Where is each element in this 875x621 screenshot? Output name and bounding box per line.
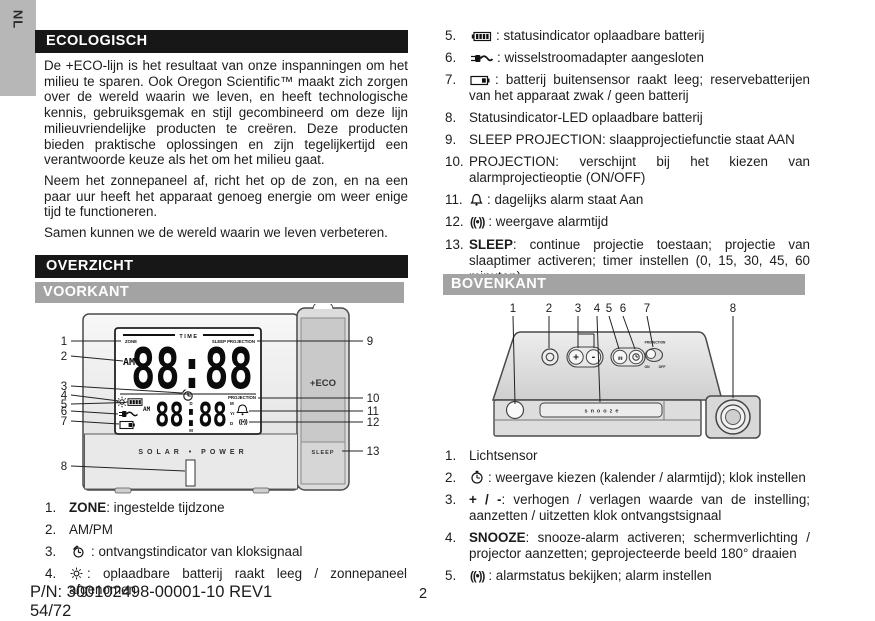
item-number: 12. [445, 214, 469, 231]
projection-switch-label: PROJECTION [645, 341, 666, 345]
item-text: SLEEP PROJECTION: slaapprojectiefunctie … [469, 132, 810, 148]
item-text: Lichtsensor [469, 448, 810, 464]
item-text: ZONE: ingestelde tijdzone [69, 500, 407, 516]
item-number: 9. [445, 132, 469, 148]
sleep-button [301, 442, 345, 484]
callout-3: 3 [575, 303, 581, 315]
paragraph: Neem het zonnepaneel af, richt het op de… [44, 173, 408, 220]
callout-2: 2 [546, 303, 552, 315]
minus-label: - [592, 351, 596, 363]
callout-6: 6 [620, 303, 626, 315]
item-text: : batterij buitensensor raakt leeg; rese… [469, 72, 810, 104]
item-desc: : statusindicator oplaadbare batterij [496, 28, 704, 43]
switch-off-label: OFF [659, 365, 666, 369]
item-text: + / -: verhogen / verlagen waarde van de… [469, 492, 810, 524]
item-number: 4. [445, 530, 469, 562]
item-number: 3. [45, 544, 69, 560]
lcd-alarm-time-icon: ((•)) [239, 419, 248, 426]
lcd-m-label: M [189, 428, 193, 433]
callout-10: 10 [367, 393, 380, 405]
sun-icon [70, 567, 83, 580]
item-lead: ZONE [69, 500, 106, 515]
item-text: PROJECTION: verschijnt bij het kiezen va… [469, 154, 810, 186]
lcd-month-label: M [230, 401, 234, 406]
lcd-d-label: D [189, 401, 192, 406]
item-number: 1. [445, 448, 469, 464]
list-item: 3. : ontvangstindicator van kloksignaal [45, 544, 407, 560]
plus-label: + [573, 353, 579, 364]
list-item: 7. : batterij buitensensor raakt leeg; r… [445, 72, 810, 104]
sleep-button-label: SLEEP [311, 450, 334, 456]
foot [253, 488, 269, 493]
solar-panel-slot [186, 460, 195, 486]
callout-9: 9 [367, 336, 373, 348]
left-column: ECOLOGISCH De +ECO-lijn is het resultaat… [35, 30, 408, 590]
item-desc: Lichtsensor [469, 448, 537, 463]
page-number: 2 [419, 586, 427, 602]
item-desc: : alarmstatus bekijken; alarm instellen [488, 568, 711, 583]
list-item: 6. : wisselstroomadapter aangesloten [445, 50, 810, 66]
battery-status-icon [470, 31, 492, 42]
item-text: ((•)): alarmstatus bekijken; alarm inste… [469, 568, 810, 585]
bell-icon [470, 192, 483, 206]
item-lead: SNOOZE [469, 530, 526, 545]
clock-set-button [542, 349, 558, 365]
lcd-small-am: AM [143, 406, 151, 413]
list-item: 9. SLEEP PROJECTION: slaapprojectiefunct… [445, 132, 810, 148]
item-text: Statusindicator-LED oplaadbare batterij [469, 110, 810, 126]
ecologisch-text: De +ECO-lijn is het resultaat van onze i… [35, 58, 408, 241]
item-desc: : dagelijks alarm staat Aan [487, 192, 643, 207]
list-item: 5. : statusindicator oplaadbare batterij [445, 28, 810, 44]
item-desc: : ontvangstindicator van kloksignaal [91, 544, 302, 559]
lcd-year-label: Yr [230, 411, 235, 416]
item-number: 1. [45, 500, 69, 516]
item-desc: Statusindicator-LED oplaadbare batterij [469, 110, 703, 125]
top-view-diagram: snooze + - ((•)) PROJECTION ON OFF 1 2 3… [443, 298, 805, 446]
lcd-projection-label: PROJECTION [228, 395, 256, 400]
list-item: 1. Lichtsensor [445, 448, 810, 464]
list-item: 10. PROJECTION: verschijnt bij het kieze… [445, 154, 810, 186]
item-number: 11. [445, 192, 469, 208]
item-desc: : weergave kiezen (kalender / alarmtijd)… [488, 470, 806, 485]
callout-7: 7 [644, 303, 650, 315]
item-desc: : ingestelde tijdzone [106, 500, 224, 515]
callout-7: 7 [61, 416, 67, 428]
paragraph: Samen kunnen we de wereld waarin we leve… [44, 225, 408, 241]
item-text: SNOOZE: snooze-alarm activeren; schermve… [469, 530, 810, 562]
callout-1: 1 [61, 336, 67, 348]
paragraph: De +ECO-lijn is het resultaat van onze i… [44, 58, 408, 168]
section-header-overzicht: OVERZICHT [35, 255, 408, 278]
item-text: : dagelijks alarm staat Aan [469, 192, 810, 208]
callout-5: 5 [606, 303, 612, 315]
item-number: 5. [445, 568, 469, 585]
footer: P/N: 300102498-00001-10 REV1 54/72 [30, 583, 272, 621]
item-number: 7. [445, 72, 469, 104]
solar-power-label: SOLAR • POWER [138, 449, 247, 456]
list-item: 11. : dagelijks alarm staat Aan [445, 192, 810, 208]
item-desc: PROJECTION: verschijnt bij het kiezen va… [469, 154, 810, 185]
display-list: 5. : statusindicator oplaadbare batterij… [445, 28, 810, 291]
item-text: ((•)): weergave alarmtijd [469, 214, 810, 231]
battery-low-icon [470, 75, 491, 86]
item-text: : ontvangstindicator van kloksignaal [69, 544, 407, 560]
list-item: 8. Statusindicator-LED oplaadbare batter… [445, 110, 810, 126]
light-sensor [507, 402, 524, 419]
item-number: 6. [445, 50, 469, 66]
list-item: 2. AM/PM [45, 522, 407, 538]
top-list: 1. Lichtsensor 2. : weergave kiezen (kal… [445, 448, 810, 591]
item-desc: AM/PM [69, 522, 113, 537]
language-tab-label: NL [11, 2, 26, 38]
switch-on-label: ON [644, 365, 650, 369]
item-text: : statusindicator oplaadbare batterij [469, 28, 810, 44]
list-item: 4. SNOOZE: snooze-alarm activeren; scher… [445, 530, 810, 562]
callout-4: 4 [594, 303, 601, 315]
item-number: 10. [445, 154, 469, 186]
alarm-time-icon: ((•)) [470, 571, 484, 583]
alarm-time-icon: ((•)) [470, 217, 484, 229]
item-desc: SLEEP PROJECTION: slaapprojectiefunctie … [469, 132, 795, 147]
item-lead: SLEEP [469, 237, 513, 252]
sheet-number: 54/72 [30, 602, 272, 621]
clock-signal-icon [70, 545, 87, 558]
item-number: 3. [445, 492, 469, 524]
front-view-diagram: +ECO SLEEP SOLAR • POWER TIME ZONE SLEEP… [35, 304, 408, 500]
callout-12: 12 [367, 417, 380, 429]
part-number: P/N: 300102498-00001-10 REV1 [30, 583, 272, 602]
clock-icon [470, 470, 484, 484]
arm-notch [313, 304, 333, 309]
manual-page: { "page": { "language_tab": "NL", "page_… [0, 0, 875, 621]
projection-switch-knob [647, 350, 656, 359]
item-text: : wisselstroomadapter aangesloten [469, 50, 810, 66]
lcd-time-digits: 88:88 [131, 337, 253, 402]
item-number: 8. [445, 110, 469, 126]
list-item: 2. : weergave kiezen (kalender / alarmti… [445, 470, 810, 486]
list-item: 12. ((•)): weergave alarmtijd [445, 214, 810, 231]
section-header-bovenkant: BOVENKANT [443, 274, 805, 295]
device-top-body [493, 332, 722, 400]
section-header-ecologisch: ECOLOGISCH [35, 30, 408, 53]
callout-2: 2 [61, 351, 67, 363]
item-desc: : batterij buitensensor raakt leeg; rese… [469, 72, 810, 103]
item-text: AM/PM [69, 522, 407, 538]
item-desc: : verhogen / verlagen waarde van de inst… [469, 492, 810, 523]
section-header-voorkant: VOORKANT [35, 282, 404, 303]
item-desc: : wisselstroomadapter aangesloten [497, 50, 704, 65]
right-column: 5. : statusindicator oplaadbare batterij… [443, 28, 810, 608]
projector-lens-inner [726, 410, 741, 425]
list-item: 3. + / -: verhogen / verlagen waarde van… [445, 492, 810, 524]
snooze-label: snooze [585, 409, 622, 415]
item-number: 5. [445, 28, 469, 44]
eco-label: +ECO [310, 378, 336, 389]
language-tab: NL [0, 0, 36, 96]
item-lead: + / - [469, 492, 501, 507]
callout-1: 1 [510, 303, 516, 315]
item-number: 2. [45, 522, 69, 538]
callout-8: 8 [61, 461, 67, 473]
item-text: : weergave kiezen (kalender / alarmtijd)… [469, 470, 810, 486]
callout-8: 8 [730, 303, 736, 315]
list-item: 1. ZONE: ingestelde tijdzone [45, 500, 407, 516]
callout-13: 13 [367, 446, 380, 458]
list-item: 5. ((•)): alarmstatus bekijken; alarm in… [445, 568, 810, 585]
item-number: 2. [445, 470, 469, 486]
top-callouts: 1 2 3 4 5 6 7 8 [510, 303, 736, 315]
foot [115, 488, 131, 493]
item-desc: : weergave alarmtijd [488, 214, 608, 229]
ac-adapter-icon [470, 53, 493, 64]
